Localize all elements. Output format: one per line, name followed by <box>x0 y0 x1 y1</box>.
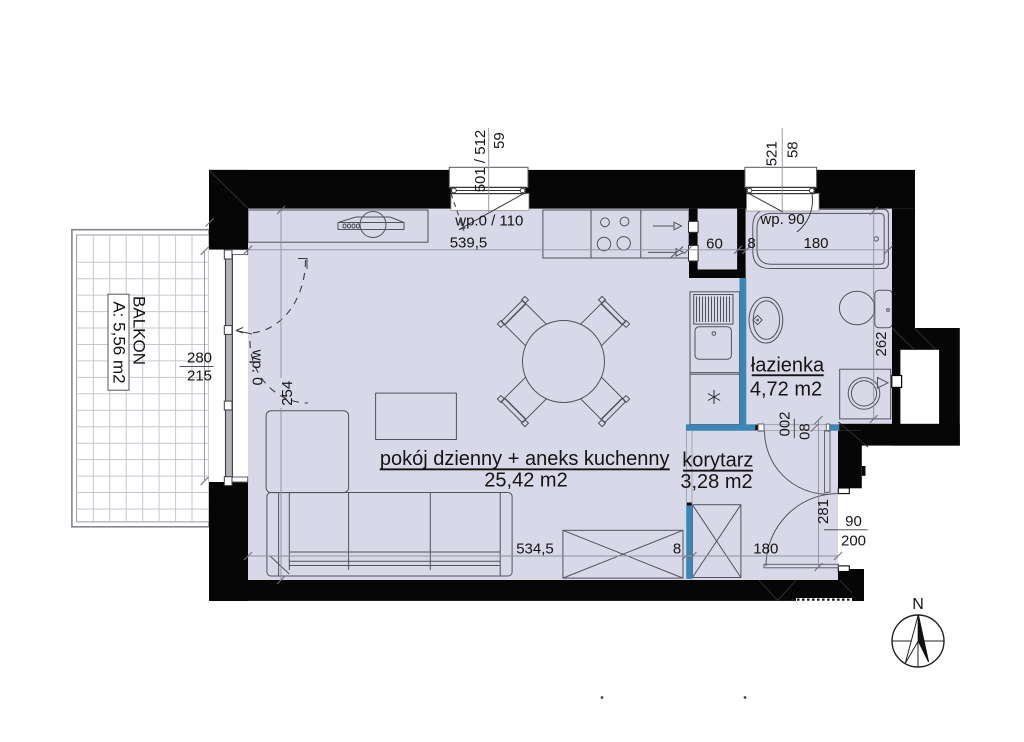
svg-text:280: 280 <box>187 350 212 367</box>
svg-text:200: 200 <box>841 533 866 550</box>
svg-text:254: 254 <box>279 381 296 406</box>
svg-text:539,5: 539,5 <box>450 235 488 252</box>
svg-text:281: 281 <box>815 499 832 524</box>
svg-text:8: 8 <box>747 235 755 252</box>
svg-text:90: 90 <box>845 513 862 530</box>
svg-text:262: 262 <box>873 331 890 356</box>
svg-text:8: 8 <box>673 541 681 558</box>
svg-text:wp.0 / 110: wp.0 / 110 <box>454 213 523 230</box>
svg-text:59: 59 <box>491 132 508 149</box>
svg-text:58: 58 <box>785 141 802 158</box>
svg-text:501 / 512: 501 / 512 <box>472 130 489 193</box>
svg-text:pokój dzienny + aneks kuchenny: pokój dzienny + aneks kuchenny <box>380 448 670 470</box>
svg-text:215: 215 <box>187 368 212 385</box>
svg-text:wp. 0: wp. 0 <box>249 349 266 386</box>
svg-text:180: 180 <box>753 541 778 558</box>
svg-text:08: 08 <box>797 423 814 440</box>
svg-text:60: 60 <box>706 236 723 253</box>
svg-text:łazienka: łazienka <box>751 355 825 377</box>
svg-text:A: 5,56 m2: A: 5,56 m2 <box>110 301 129 383</box>
svg-text:180: 180 <box>803 235 828 252</box>
svg-text:534,5: 534,5 <box>516 541 554 558</box>
svg-text:521: 521 <box>764 141 781 166</box>
svg-text:wp. 90: wp. 90 <box>759 211 804 228</box>
svg-text:25,42 m2: 25,42 m2 <box>484 470 567 492</box>
svg-text:4,72 m2: 4,72 m2 <box>750 379 822 401</box>
svg-text:3,28 m2: 3,28 m2 <box>680 471 752 493</box>
svg-text:N: N <box>912 596 924 613</box>
svg-text:BALKON: BALKON <box>130 296 149 365</box>
svg-text:002: 002 <box>777 411 794 436</box>
svg-text:korytarz: korytarz <box>682 450 753 472</box>
